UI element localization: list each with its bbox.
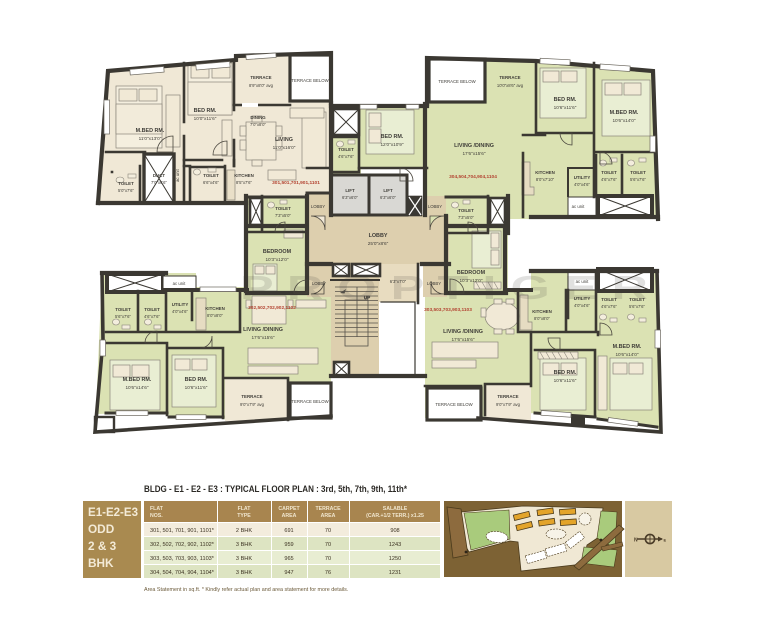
svg-text:BEDROOM: BEDROOM <box>263 249 292 255</box>
svg-text:TERRACE: TERRACE <box>250 75 271 80</box>
svg-text:M.BED RM.: M.BED RM. <box>123 377 152 383</box>
svg-text:303, 503, 703, 903, 1103*: 303, 503, 703, 903, 1103* <box>150 556 215 562</box>
svg-text:4'0"x4'6": 4'0"x4'6" <box>574 182 590 187</box>
svg-text:5'6"x7'6": 5'6"x7'6" <box>630 177 646 182</box>
svg-text:UTILITY: UTILITY <box>172 302 189 307</box>
svg-text:8'9"x8'0" avg: 8'9"x8'0" avg <box>249 83 274 88</box>
svg-text:Area Statement in sq.ft. * Kin: Area Statement in sq.ft. * Kindly refer … <box>144 587 348 593</box>
svg-text:7'3"x5'0": 7'3"x5'0" <box>458 215 474 220</box>
svg-text:6'3"x6'0": 6'3"x6'0" <box>342 195 358 200</box>
svg-text:M.BED RM.: M.BED RM. <box>610 110 639 116</box>
svg-text:8'0"x8'0": 8'0"x8'0" <box>207 313 223 318</box>
svg-text:ODD: ODD <box>88 522 115 536</box>
svg-text:UTILITY: UTILITY <box>574 175 591 180</box>
svg-text:10'6"x14'0": 10'6"x14'0" <box>612 118 635 123</box>
svg-text:10'0"x11'6": 10'0"x11'6" <box>194 116 217 121</box>
svg-text:LIVING /DINING: LIVING /DINING <box>443 329 483 335</box>
svg-text:CARPET: CARPET <box>278 506 300 512</box>
svg-text:KITCHEN: KITCHEN <box>205 306 225 311</box>
svg-text:4'6"x7'6": 4'6"x7'6" <box>601 177 617 182</box>
svg-text:KITCHEN: KITCHEN <box>234 173 254 178</box>
svg-text:BED RM.: BED RM. <box>554 97 577 103</box>
svg-text:BED RM.: BED RM. <box>381 134 404 140</box>
svg-text:TOILET: TOILET <box>115 307 131 312</box>
svg-text:DUCT: DUCT <box>153 173 166 178</box>
svg-text:10'6"x14'6": 10'6"x14'6" <box>125 385 148 390</box>
svg-text:3 BHK: 3 BHK <box>236 542 252 548</box>
svg-text:8'5"x7'6": 8'5"x7'6" <box>236 180 252 185</box>
svg-text:303,503,703,903,1103: 303,503,703,903,1103 <box>424 307 472 313</box>
svg-text:10'6"x11'6": 10'6"x11'6" <box>554 105 577 110</box>
svg-text:ac unit: ac unit <box>175 169 180 182</box>
svg-text:8'0"x8'0": 8'0"x8'0" <box>534 316 550 321</box>
svg-text:LOBBY: LOBBY <box>428 204 442 209</box>
svg-text:10'6"x11'6": 10'6"x11'6" <box>185 385 208 390</box>
svg-text:M.BED RM.: M.BED RM. <box>613 344 642 350</box>
svg-text:7'3"x5'0": 7'3"x5'0" <box>275 213 291 218</box>
svg-text:SALABLE: SALABLE <box>383 506 408 512</box>
svg-text:7'0"x6'6": 7'0"x6'6" <box>151 180 167 185</box>
svg-text:TOILET: TOILET <box>203 173 219 178</box>
svg-text:691: 691 <box>284 528 293 534</box>
svg-text:TERRACE: TERRACE <box>315 506 341 512</box>
svg-text:1243: 1243 <box>389 542 401 548</box>
svg-text:965: 965 <box>284 556 293 562</box>
svg-text:LIVING: LIVING <box>275 137 293 143</box>
svg-text:TERRACE: TERRACE <box>241 394 262 399</box>
svg-text:TERRACE BELOW: TERRACE BELOW <box>291 399 329 404</box>
svg-text:4'6"x7'6": 4'6"x7'6" <box>144 314 160 319</box>
svg-text:2 & 3: 2 & 3 <box>88 539 117 553</box>
svg-text:ac unit: ac unit <box>173 281 186 286</box>
svg-text:TOILET: TOILET <box>630 170 646 175</box>
svg-text:LOBBY: LOBBY <box>311 204 325 209</box>
svg-text:1250: 1250 <box>389 556 401 562</box>
svg-text:BED RM.: BED RM. <box>554 370 577 376</box>
svg-text:1231: 1231 <box>389 570 401 576</box>
svg-text:304, 504, 704, 904, 1104*: 304, 504, 704, 904, 1104* <box>150 570 215 576</box>
svg-text:LIFT: LIFT <box>345 188 355 193</box>
svg-text:N: N <box>634 538 638 544</box>
svg-text:6'6"x4'6": 6'6"x4'6" <box>203 180 219 185</box>
svg-text:908: 908 <box>390 528 399 534</box>
svg-text:P R O P T I G E R: P R O P T I G E R <box>240 269 648 306</box>
svg-text:BED RM.: BED RM. <box>185 377 208 383</box>
svg-text:TYPE: TYPE <box>237 513 251 519</box>
svg-text:9'0"x7'9" avg: 9'0"x7'9" avg <box>240 402 265 407</box>
svg-text:17'6"x15'6": 17'6"x15'6" <box>462 151 485 156</box>
svg-text:TOILET: TOILET <box>118 181 134 186</box>
svg-text:9'0"x7'9" avg: 9'0"x7'9" avg <box>496 402 521 407</box>
svg-text:10'0"x8'6" avg: 10'0"x8'6" avg <box>497 83 524 88</box>
svg-text:LIVING /DINING: LIVING /DINING <box>243 327 283 333</box>
svg-text:BLDG - E1 - E2 - E3 : TYPICAL: BLDG - E1 - E2 - E3 : TYPICAL FLOOR PLAN… <box>144 484 408 494</box>
svg-text:11'0"x13'0": 11'0"x13'0" <box>139 136 162 141</box>
svg-text:TOILET: TOILET <box>601 170 617 175</box>
svg-text:(CAR.+1/2 TERR.) x1.25: (CAR.+1/2 TERR.) x1.25 <box>366 513 424 519</box>
svg-text:17'6"x15'6": 17'6"x15'6" <box>451 337 474 342</box>
svg-text:76: 76 <box>325 570 331 576</box>
svg-text:3 BHK: 3 BHK <box>236 556 252 562</box>
svg-text:5'0"x7'6": 5'0"x7'6" <box>118 188 134 193</box>
svg-text:8'0"x7'10": 8'0"x7'10" <box>536 177 555 182</box>
svg-text:LOBBY: LOBBY <box>369 233 388 239</box>
svg-text:TOILET: TOILET <box>275 206 291 211</box>
svg-text:DINING: DINING <box>250 115 266 120</box>
svg-text:BED RM.: BED RM. <box>194 108 217 114</box>
svg-text:70: 70 <box>325 556 331 562</box>
svg-text:10'6"x14'0": 10'6"x14'0" <box>615 352 638 357</box>
svg-text:301, 501, 701, 901, 1101*: 301, 501, 701, 901, 1101* <box>150 528 215 534</box>
svg-text:TERRACE: TERRACE <box>499 75 520 80</box>
svg-text:959: 959 <box>284 542 293 548</box>
svg-text:BHK: BHK <box>88 556 114 570</box>
svg-text:M.BED RM.: M.BED RM. <box>136 128 165 134</box>
svg-text:FLAT: FLAT <box>238 506 252 512</box>
svg-text:KITCHEN: KITCHEN <box>535 170 555 175</box>
svg-text:17'6"x15'6": 17'6"x15'6" <box>251 335 274 340</box>
svg-text:AREA: AREA <box>282 513 297 519</box>
svg-text:TOILET: TOILET <box>144 307 160 312</box>
svg-text:E: E <box>664 538 667 543</box>
svg-text:70: 70 <box>325 542 331 548</box>
svg-text:E1-E2-E3: E1-E2-E3 <box>88 505 138 519</box>
svg-text:7'0"x8'0": 7'0"x8'0" <box>250 122 266 127</box>
svg-text:6'3"x6'0": 6'3"x6'0" <box>380 195 396 200</box>
svg-text:947: 947 <box>284 570 293 576</box>
svg-text:TERRACE BELOW: TERRACE BELOW <box>435 402 473 407</box>
svg-text:11'0"x16'0": 11'0"x16'0" <box>273 145 296 150</box>
svg-text:KITCHEN: KITCHEN <box>532 309 552 314</box>
svg-text:302, 502, 702, 902, 1102*: 302, 502, 702, 902, 1102* <box>150 542 215 548</box>
svg-text:2 BHK: 2 BHK <box>236 528 252 534</box>
svg-text:10'3"x12'0": 10'3"x12'0" <box>265 257 288 262</box>
svg-text:3 BHK: 3 BHK <box>236 570 252 576</box>
svg-text:LIVING /DINING: LIVING /DINING <box>454 143 494 149</box>
svg-text:TOILET: TOILET <box>338 147 354 152</box>
svg-text:12'0"x10'9": 12'0"x10'9" <box>380 142 403 147</box>
svg-text:AREA: AREA <box>321 513 336 519</box>
svg-text:TOILET: TOILET <box>458 208 474 213</box>
svg-text:4'6"x7'6": 4'6"x7'6" <box>338 154 354 159</box>
svg-text:304,504,704,904,1104: 304,504,704,904,1104 <box>449 174 497 180</box>
svg-text:25'0"x8'6": 25'0"x8'6" <box>368 241 389 246</box>
svg-text:TERRACE: TERRACE <box>497 394 518 399</box>
svg-text:NOS.: NOS. <box>150 513 163 519</box>
svg-text:10'6"x11'6": 10'6"x11'6" <box>554 378 577 383</box>
svg-text:TERRACE BELOW: TERRACE BELOW <box>291 78 329 83</box>
svg-text:301,501,701,901,1101: 301,501,701,901,1101 <box>272 180 320 186</box>
svg-text:LIFT: LIFT <box>383 188 393 193</box>
svg-text:FLAT: FLAT <box>150 506 164 512</box>
svg-text:70: 70 <box>325 528 331 534</box>
svg-text:5'6"x7'6": 5'6"x7'6" <box>115 314 131 319</box>
svg-text:4'0"x4'6": 4'0"x4'6" <box>172 309 188 314</box>
svg-text:ac unit: ac unit <box>572 204 585 209</box>
svg-text:TERRACE BELOW: TERRACE BELOW <box>438 79 476 84</box>
